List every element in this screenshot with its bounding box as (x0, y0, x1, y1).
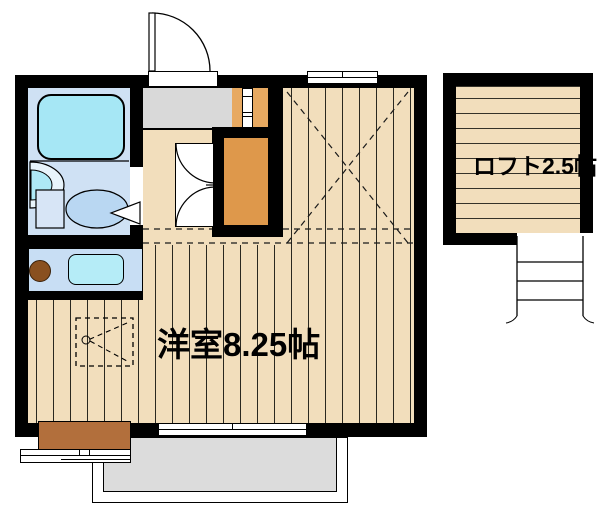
closet-door-arc (176, 143, 214, 183)
ladder-icon-hinge (82, 336, 90, 344)
floorplan: 洋室8.25帖 ロフト2.5帖 (0, 0, 600, 510)
loft-ladder-foot (583, 316, 594, 323)
loft-label: ロフト2.5帖 (473, 147, 597, 181)
lineart-overlay (0, 0, 600, 510)
closet-door-arc (176, 187, 214, 227)
loft-ladder-foot (506, 316, 517, 323)
entry-door-leaf (149, 13, 155, 71)
ladder-icon-box (76, 318, 133, 366)
entry-door-arc (152, 13, 210, 71)
toilet-tank (36, 190, 64, 228)
ladder-icon-chevron (88, 323, 127, 361)
main-room-label: 洋室8.25帖 (157, 318, 320, 366)
toilet-bowl (66, 190, 128, 228)
